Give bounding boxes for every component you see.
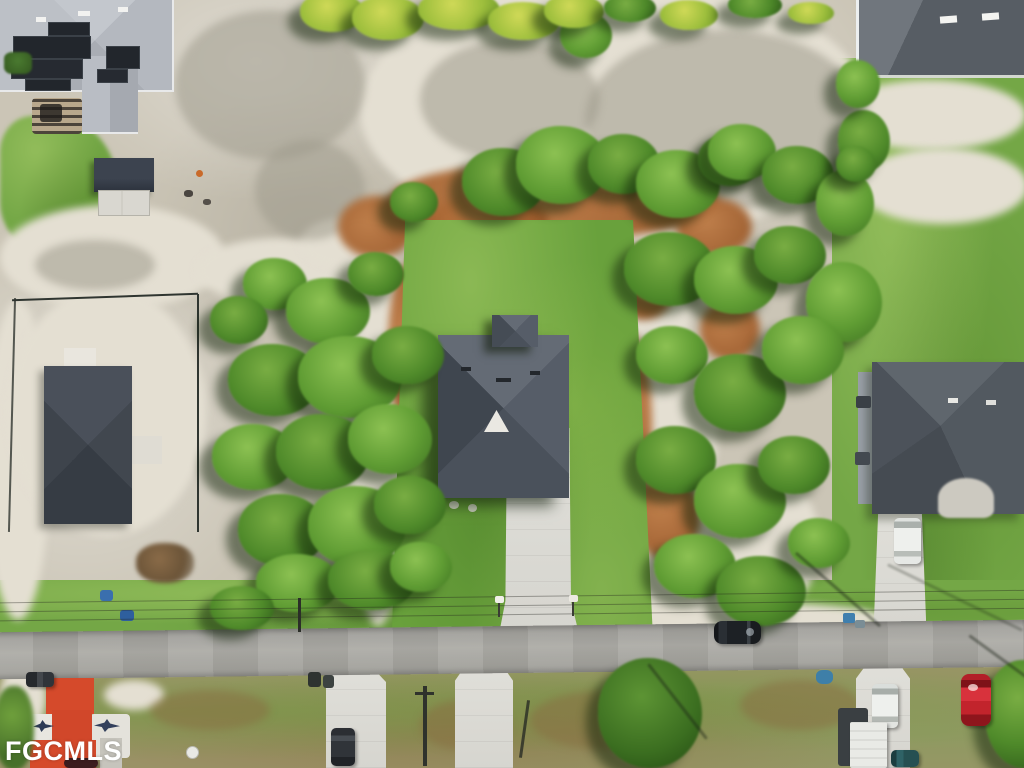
car-glint (746, 628, 754, 636)
entry-alcove (938, 478, 994, 518)
lawn-stone (449, 501, 459, 509)
roof-vent-slit (496, 378, 511, 382)
tree (836, 60, 880, 108)
watermark-text: FGCMLS (5, 736, 122, 767)
neighbor-house-left-roof (44, 366, 132, 524)
sand-mottle (35, 240, 155, 290)
ac-unit (855, 452, 870, 465)
garden-bed (4, 52, 32, 74)
debris-dark (184, 190, 193, 197)
scrub-dirt-patch (150, 690, 270, 730)
silt-fence-right (197, 294, 199, 532)
side-pad (128, 436, 162, 464)
tree (788, 2, 834, 24)
roof-vent-slit (530, 371, 540, 375)
patio-dark-furniture (40, 104, 62, 122)
roof-vent-slit (461, 367, 471, 371)
tree (348, 404, 432, 474)
solar-panel-array (48, 22, 90, 36)
roof-vent (986, 400, 996, 405)
pole-crossarm (415, 692, 434, 695)
utility-pole (423, 686, 427, 766)
tree (660, 0, 718, 30)
mailbox-post (572, 602, 574, 616)
mailbox (569, 595, 578, 602)
white-trailer (850, 722, 887, 768)
utility-pole (298, 598, 301, 632)
tree (390, 182, 438, 222)
roof-vent (948, 398, 958, 403)
tree (836, 146, 876, 182)
tree (758, 436, 830, 494)
ac-unit (856, 396, 871, 408)
utility-marker (186, 746, 199, 759)
debris-orange (196, 170, 203, 177)
teal-car-bottom (891, 750, 919, 767)
solar-panel-array (97, 69, 128, 83)
neighbor-building-topright-roof (856, 0, 1024, 78)
trash-bin (323, 675, 334, 688)
tree (374, 476, 446, 534)
white-car-right-driveway (894, 518, 921, 564)
roof-vent (982, 12, 999, 20)
tree (716, 556, 806, 626)
mailbox (495, 596, 504, 603)
roof-vent (78, 11, 90, 16)
tree (372, 326, 444, 384)
shed-roof (94, 158, 154, 192)
dark-car-lower-left (331, 728, 355, 766)
driveway-across-street (455, 664, 513, 768)
main-house-front-gable (492, 315, 538, 347)
roof-vent (118, 7, 128, 12)
solar-panel-array (106, 46, 140, 69)
blue-bin (100, 590, 113, 601)
blue-bin-road-edge (855, 620, 865, 628)
dark-pickup-left (26, 672, 54, 687)
trash-bin (308, 672, 321, 687)
mailbox-post (498, 603, 500, 617)
tree (788, 518, 850, 568)
tree (348, 252, 404, 296)
main-house-roof (438, 335, 569, 498)
solar-panel-array (25, 79, 71, 91)
aerial-photo: FGCMLS (0, 0, 1024, 768)
sand-mottle (175, 10, 365, 160)
construction-debris (136, 543, 194, 583)
entry-pad (64, 348, 96, 368)
tree (390, 542, 452, 592)
roof-vent (940, 15, 957, 23)
blue-object (816, 670, 833, 684)
tree (762, 316, 844, 384)
red-car-glint (968, 684, 978, 691)
blue-bin-road-edge (843, 613, 855, 623)
shed-concrete-pad (98, 190, 150, 216)
tree (210, 296, 268, 344)
lawn-stone (468, 504, 477, 512)
roof-vent (36, 17, 46, 22)
debris-dark (203, 199, 211, 205)
red-car (961, 674, 991, 726)
